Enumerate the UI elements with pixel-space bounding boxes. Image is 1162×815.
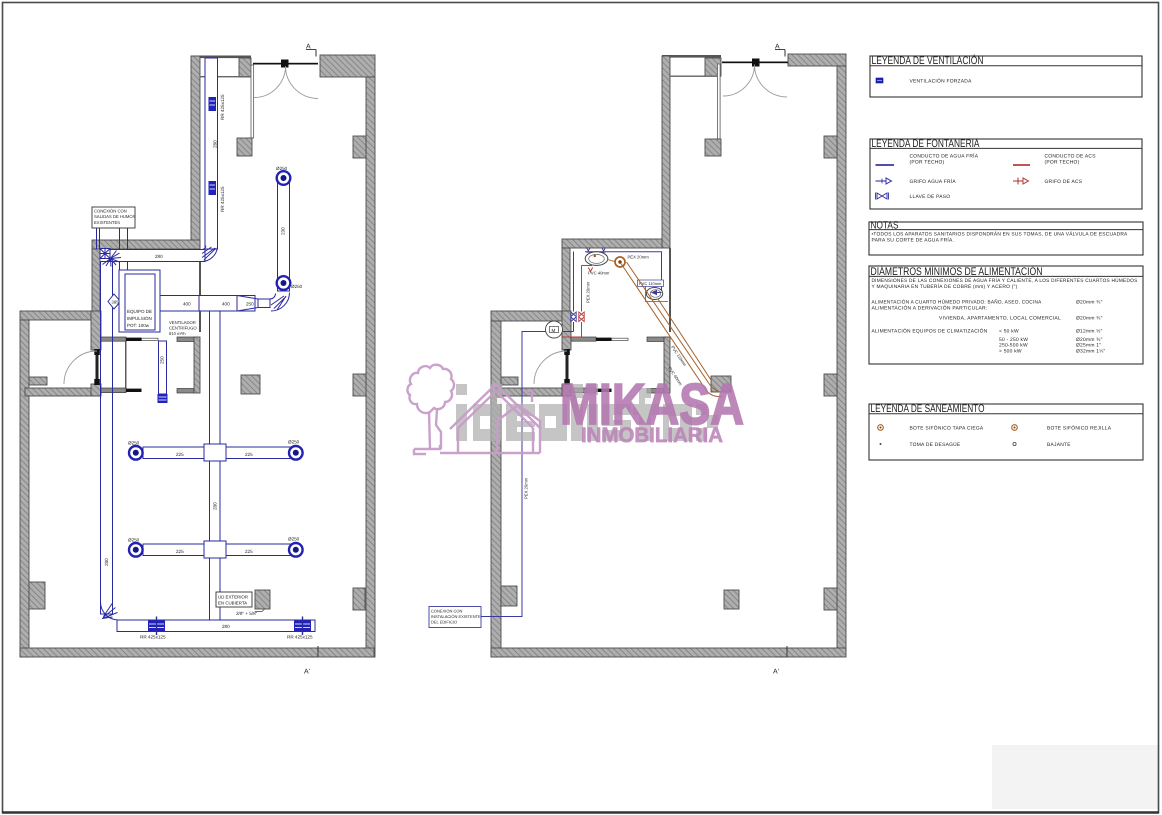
svg-text:CENTRÍFUGO: CENTRÍFUGO (169, 326, 197, 331)
svg-text:EQUIPO DE: EQUIPO DE (127, 309, 152, 314)
svg-text:225: 225 (176, 549, 184, 554)
svg-text:225: 225 (176, 452, 184, 457)
svg-text:DIMENSIONES DE LAS CONEXIONES: DIMENSIONES DE LAS CONEXIONES DE AGUA FR… (872, 277, 1138, 284)
svg-text:DEL EDIFICIO: DEL EDIFICIO (431, 620, 457, 625)
svg-text:250: 250 (160, 356, 165, 364)
svg-text:400: 400 (183, 302, 191, 307)
svg-text:DIÁMETROS MÍNIMOS DE ALIMENTAC: DIÁMETROS MÍNIMOS DE ALIMENTACIÓN (871, 265, 1043, 278)
svg-text:250-500 kW: 250-500 kW (999, 343, 1028, 349)
svg-text:ALIMENTACIÓN A DERIVACIÓN PART: ALIMENTACIÓN A DERIVACIÓN PARTICULAR: (872, 305, 988, 312)
svg-text:CONEXIÓN CON: CONEXIÓN CON (431, 608, 462, 613)
svg-text:Y MAQUINARIA EN TUBERÍA DE COB: Y MAQUINARIA EN TUBERÍA DE COBRE (mm) Y … (872, 283, 1018, 290)
svg-text:280: 280 (104, 558, 109, 566)
svg-text:LEYENDA DE VENTILACIÓN: LEYENDA DE VENTILACIÓN (872, 54, 984, 67)
svg-text:VENTILACIÓN FORZADA: VENTILACIÓN FORZADA (910, 78, 973, 85)
svg-text:VIVIENDA, APARTAMENTO, LOCAL C: VIVIENDA, APARTAMENTO, LOCAL COMERCIAL (939, 316, 1061, 322)
svg-text:PEX 20mm: PEX 20mm (628, 255, 650, 260)
svg-text:EN CUBIERTA: EN CUBIERTA (218, 601, 247, 606)
svg-text:Ø250: Ø250 (276, 166, 288, 171)
svg-text:PARA SU CORTE DE AGUA FRÍA.: PARA SU CORTE DE AGUA FRÍA. (872, 237, 955, 244)
svg-text:EXISTENTES: EXISTENTES (94, 220, 120, 225)
svg-text:CONDUCTO DE ACS: CONDUCTO DE ACS (1045, 154, 1097, 160)
svg-text:VENTILADOR: VENTILADOR (169, 320, 196, 325)
svg-text:Ø20mm ¾": Ø20mm ¾" (1076, 316, 1103, 322)
svg-text:POT: 100w: POT: 100w (127, 323, 150, 328)
svg-text:RR 425x125: RR 425x125 (220, 94, 225, 120)
svg-text:GRIFO DE ACS: GRIFO DE ACS (1045, 179, 1083, 185)
svg-text:M: M (552, 328, 556, 333)
svg-text:BOTE SIFÓNICO TAPA CIEGA: BOTE SIFÓNICO TAPA CIEGA (910, 425, 984, 432)
svg-text:PEX 20mm: PEX 20mm (586, 281, 591, 303)
svg-text:INSTALACIÓN EXISTENTE: INSTALACIÓN EXISTENTE (431, 614, 481, 619)
svg-text:50 - 250 kW: 50 - 250 kW (999, 337, 1028, 343)
svg-text:BAJANTE: BAJANTE (1047, 442, 1071, 448)
svg-text:UD EXTERIOR: UD EXTERIOR (218, 595, 248, 600)
svg-text:(POR TECHO): (POR TECHO) (1045, 160, 1080, 166)
svg-text:A: A (306, 44, 311, 51)
svg-text:250: 250 (246, 302, 254, 307)
svg-text:NOTAS: NOTAS (871, 220, 899, 232)
svg-text:230: 230 (281, 227, 286, 235)
svg-text:BOTE SIFÓNICO REJILLA: BOTE SIFÓNICO REJILLA (1047, 425, 1112, 432)
svg-text:GRIFO AGUA FRÍA: GRIFO AGUA FRÍA (910, 178, 957, 185)
svg-text:Ø250: Ø250 (128, 537, 140, 542)
svg-text:(POR TECHO): (POR TECHO) (910, 160, 945, 166)
svg-text:CONEXIÓN CON: CONEXIÓN CON (94, 209, 127, 214)
svg-text:225: 225 (245, 549, 253, 554)
svg-text:A': A' (773, 669, 779, 676)
svg-text:IMPULSIÓN: IMPULSIÓN (127, 316, 152, 321)
svg-text:Ø25mm 1": Ø25mm 1" (1076, 343, 1101, 349)
svg-text:ALIMENTACIÓN EQUIPOS DE CLIMAT: ALIMENTACIÓN EQUIPOS DE CLIMATIZACIÓN (872, 328, 988, 335)
svg-text:•TODOS LOS APARATOS SANITARIOS: •TODOS LOS APARATOS SANITARIOS DISPONDRÁ… (872, 231, 1128, 238)
svg-text:Ø250: Ø250 (291, 284, 303, 289)
svg-text:INMOBILIARIA: INMOBILIARIA (581, 424, 723, 447)
svg-text:Ø20mm ¾": Ø20mm ¾" (1076, 300, 1103, 306)
svg-text:RR 425x125: RR 425x125 (140, 635, 166, 640)
svg-text:3/8" + 5/8": 3/8" + 5/8" (236, 611, 258, 616)
svg-text:RR 425x125: RR 425x125 (287, 635, 313, 640)
svg-text:280: 280 (213, 140, 218, 148)
svg-text:LLAVE DE PASO: LLAVE DE PASO (910, 194, 951, 200)
svg-text:Ø250: Ø250 (128, 440, 140, 445)
svg-text:RR 425x125: RR 425x125 (220, 186, 225, 212)
svg-text:LEYENDA DE SANEAMIENTO: LEYENDA DE SANEAMIENTO (871, 403, 985, 415)
svg-text:PEX 20mm: PEX 20mm (524, 477, 529, 499)
svg-text:400: 400 (222, 302, 230, 307)
svg-text:225: 225 (245, 452, 253, 457)
svg-text:TOMA DE DESAGÜE: TOMA DE DESAGÜE (910, 441, 961, 448)
svg-text:280: 280 (155, 254, 163, 259)
svg-text:LEYENDA DE FONTANERIA: LEYENDA DE FONTANERIA (872, 138, 981, 150)
svg-text:810 m³/h: 810 m³/h (169, 331, 186, 336)
svg-text:A': A' (304, 669, 310, 676)
svg-text:Ø12mm ½": Ø12mm ½" (1076, 329, 1103, 335)
svg-text:SALIDAS DE HUMOS: SALIDAS DE HUMOS (94, 214, 136, 219)
svg-text:PVC 40mm: PVC 40mm (588, 271, 610, 276)
svg-text:A: A (775, 44, 780, 51)
svg-text:385: 385 (112, 299, 120, 304)
svg-text:CONDUCTO DE AGUA FRÍA: CONDUCTO DE AGUA FRÍA (910, 153, 979, 160)
svg-text:280: 280 (222, 624, 230, 629)
svg-text:280: 280 (213, 502, 218, 510)
svg-text:> 500 kW: > 500 kW (999, 349, 1022, 355)
svg-text:Ø250: Ø250 (288, 439, 300, 444)
svg-text:Ø32mm 1¼": Ø32mm 1¼" (1076, 349, 1106, 355)
svg-text:Ø20mm ¾": Ø20mm ¾" (1076, 337, 1103, 343)
svg-text:< 50 kW: < 50 kW (999, 329, 1019, 335)
svg-text:ALIMENTACIÓN A CUARTO HÚMEDO P: ALIMENTACIÓN A CUARTO HÚMEDO PRIVADO: BA… (872, 299, 1042, 306)
svg-text:Ø250: Ø250 (288, 536, 300, 541)
